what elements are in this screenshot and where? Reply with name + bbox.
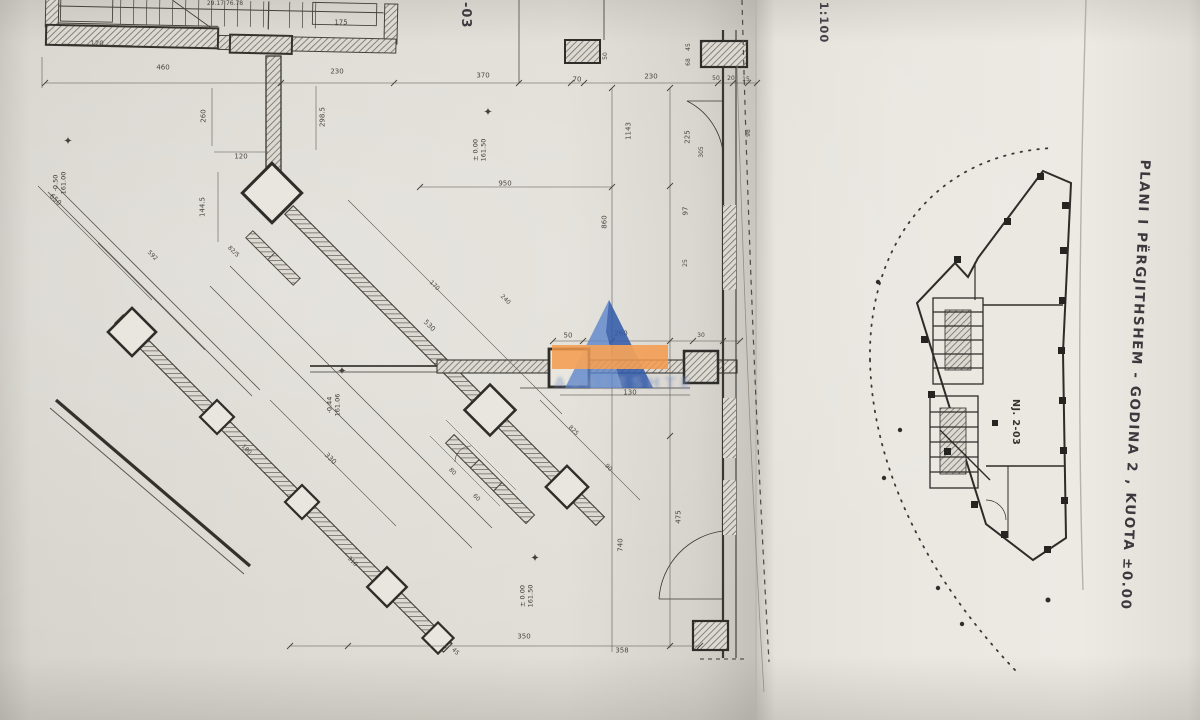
- dimension-label: 950: [498, 181, 511, 188]
- key-plan-unit-label: NJ. 2-03: [1010, 399, 1021, 445]
- dimension-label: 240: [499, 294, 511, 306]
- dimension-label: 225: [685, 130, 692, 143]
- dimension-label: 530: [422, 319, 436, 333]
- dimension-label: 170: [428, 280, 440, 292]
- elevation-marker-label: -0.50161.00: [52, 172, 69, 195]
- elevation-marker-icon: ✦: [337, 366, 346, 377]
- dimension-label: 358: [615, 648, 628, 655]
- dimension-label: 50: [603, 52, 609, 60]
- dimension-label: 298.5: [320, 107, 327, 127]
- dimension-label: 230: [644, 74, 657, 81]
- dimension-label: 144.5: [200, 197, 207, 217]
- dimension-label: 120: [90, 41, 103, 48]
- elevation-marker-label: ± 0.00161.50: [519, 585, 536, 608]
- dimension-label: 70: [573, 77, 582, 84]
- dimension-label: 80: [447, 467, 457, 477]
- dimension-label: 330: [323, 452, 337, 466]
- elevation-marker-icon: ✦: [63, 136, 72, 147]
- dimension-label: 20: [727, 76, 735, 82]
- elevation-marker-label: -0.44161.06: [326, 394, 343, 417]
- dimension-label: 45: [686, 43, 692, 51]
- dimension-label: 305: [699, 146, 705, 157]
- elevation-marker-icon: ✦: [483, 107, 492, 118]
- dimension-label: 460: [156, 65, 169, 72]
- scale-note: a 1:100: [817, 0, 831, 43]
- dimension-label: 740: [618, 538, 625, 551]
- sheet-code-label: -03: [458, 2, 473, 29]
- dimension-label: 860: [602, 215, 609, 228]
- dimension-label: 175: [334, 20, 347, 27]
- dimension-label: 260: [201, 109, 208, 122]
- dimension-label: 350: [517, 634, 530, 641]
- watermark: AVALESHTE: [552, 298, 712, 408]
- dimension-label: 230: [330, 69, 343, 76]
- dimension-label: 475: [676, 510, 683, 523]
- dimension-label: 98: [746, 129, 752, 137]
- dimension-label: 29.17 76.78: [207, 1, 243, 7]
- dimension-label: 15: [742, 77, 750, 83]
- dimension-label: 1143: [626, 122, 633, 140]
- dimension-label: 825: [567, 425, 579, 437]
- elevation-marker-label: ± 0.00161.50: [472, 139, 489, 162]
- dimension-label: 82/5: [226, 245, 240, 259]
- dimension-label: 25: [683, 259, 689, 267]
- dimension-label: 97: [683, 207, 690, 216]
- elevation-marker-icon: ✦: [530, 553, 539, 564]
- dimension-label: 592: [146, 250, 158, 262]
- dimension-label: 68: [686, 58, 692, 66]
- watermark-text: AVALESHTE: [554, 374, 695, 392]
- dimension-label: 50: [712, 76, 720, 82]
- dimension-label: 310: [346, 556, 358, 568]
- dimension-label: 120: [234, 154, 247, 161]
- watermark-orange-band: [552, 345, 668, 369]
- dimension-label: 45: [450, 647, 460, 657]
- dimension-label: 370: [476, 73, 489, 80]
- dimension-label: 90: [603, 463, 613, 473]
- dimension-label: 60: [471, 493, 481, 503]
- dimension-label: 650: [48, 193, 62, 207]
- dimension-label: 180: [240, 444, 252, 456]
